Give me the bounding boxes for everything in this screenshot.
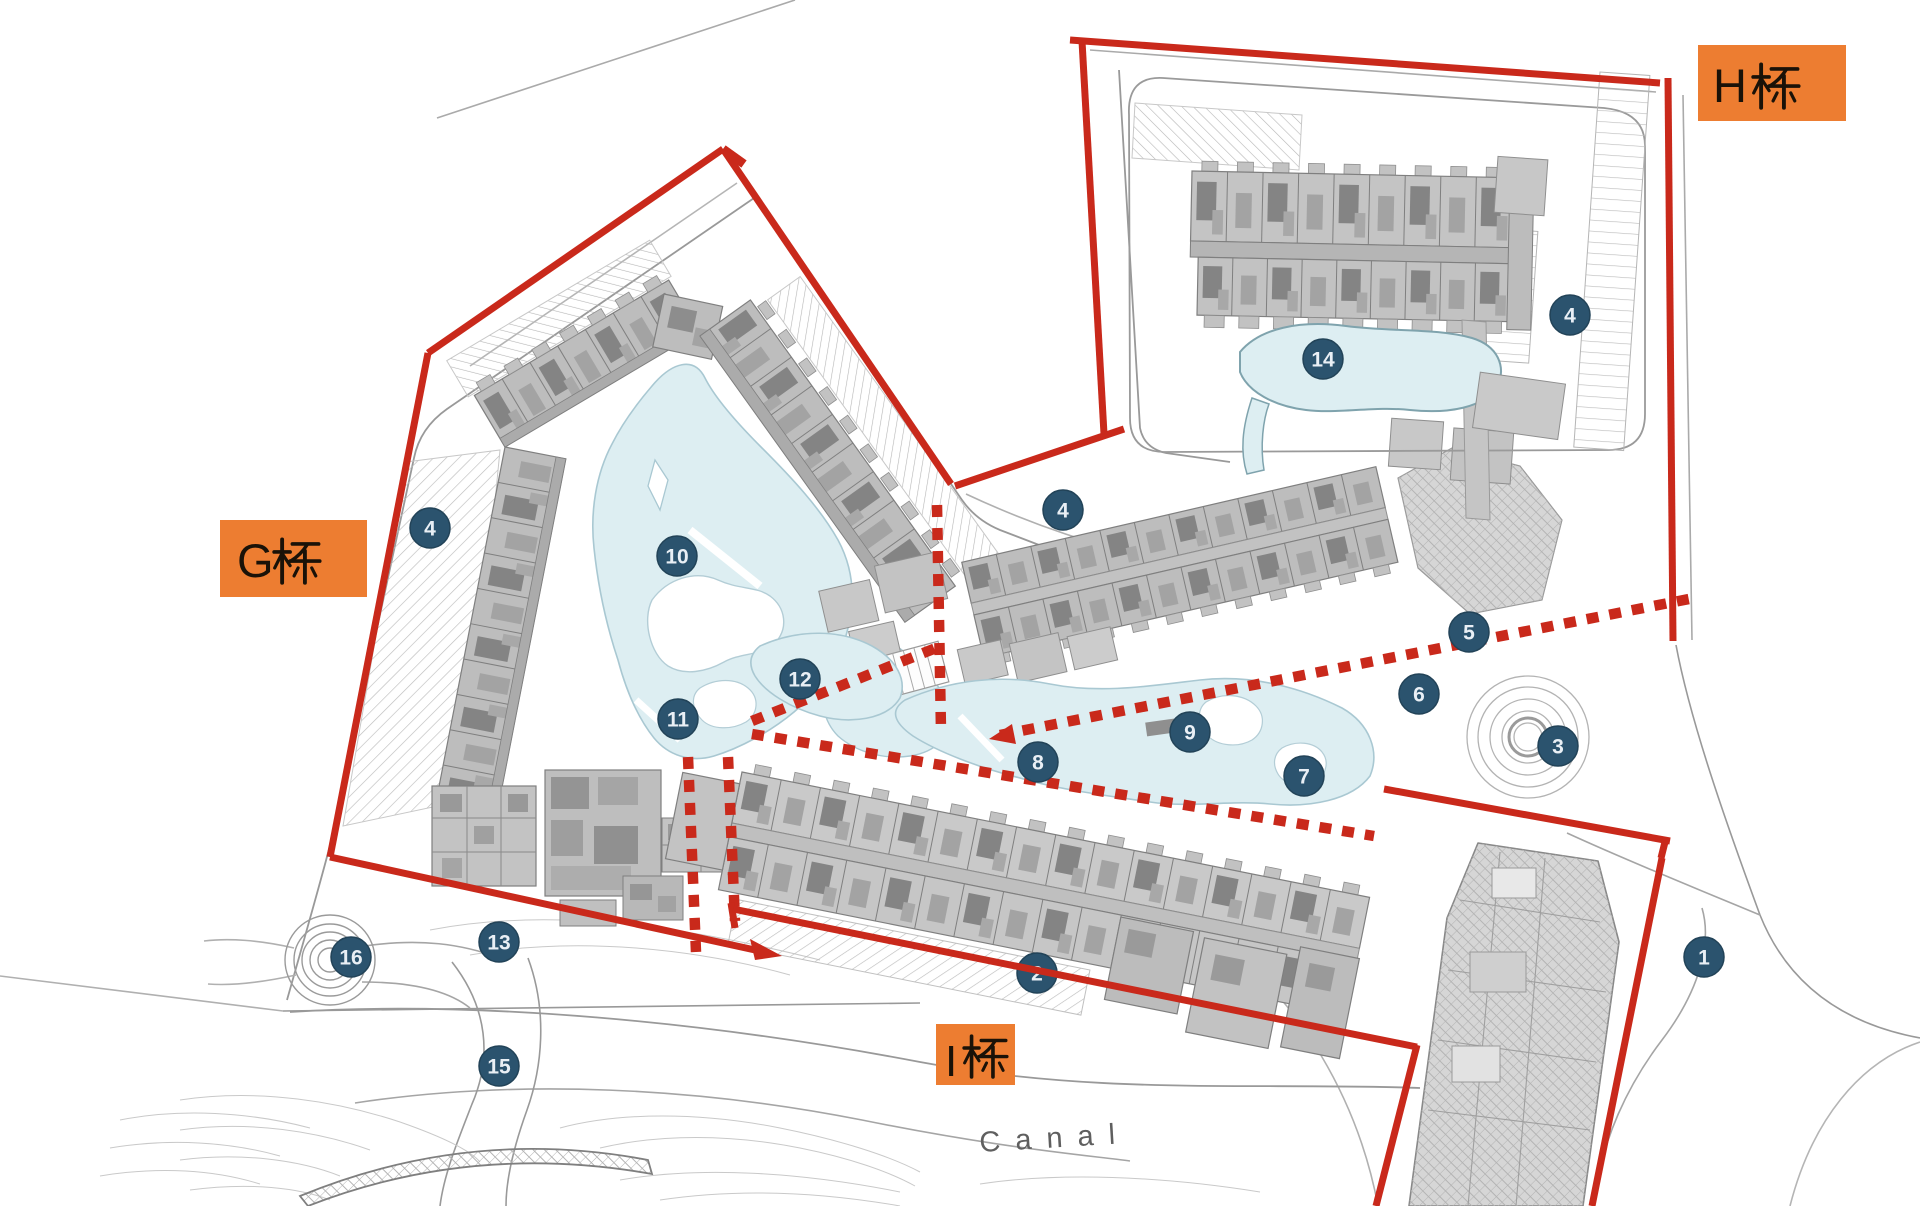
svg-text:4: 4 bbox=[424, 518, 436, 541]
svg-text:6: 6 bbox=[1413, 684, 1425, 707]
svg-text:16: 16 bbox=[339, 947, 362, 970]
svg-text:15: 15 bbox=[487, 1056, 511, 1079]
svg-text:13: 13 bbox=[487, 932, 510, 955]
svg-text:3: 3 bbox=[1552, 736, 1564, 759]
svg-text:4: 4 bbox=[1057, 500, 1069, 523]
svg-text:10: 10 bbox=[665, 546, 688, 569]
svg-text:9: 9 bbox=[1184, 722, 1196, 745]
svg-text:4: 4 bbox=[1564, 305, 1576, 328]
svg-text:8: 8 bbox=[1032, 752, 1044, 775]
svg-text:I: I bbox=[945, 1037, 957, 1086]
svg-text:14: 14 bbox=[1311, 349, 1335, 372]
svg-text:G: G bbox=[237, 534, 274, 587]
svg-text:7: 7 bbox=[1298, 766, 1310, 789]
svg-text:1: 1 bbox=[1698, 947, 1710, 970]
svg-text:H: H bbox=[1713, 59, 1747, 112]
svg-text:11: 11 bbox=[667, 709, 690, 732]
svg-text:12: 12 bbox=[788, 669, 811, 692]
svg-text:5: 5 bbox=[1463, 622, 1475, 645]
